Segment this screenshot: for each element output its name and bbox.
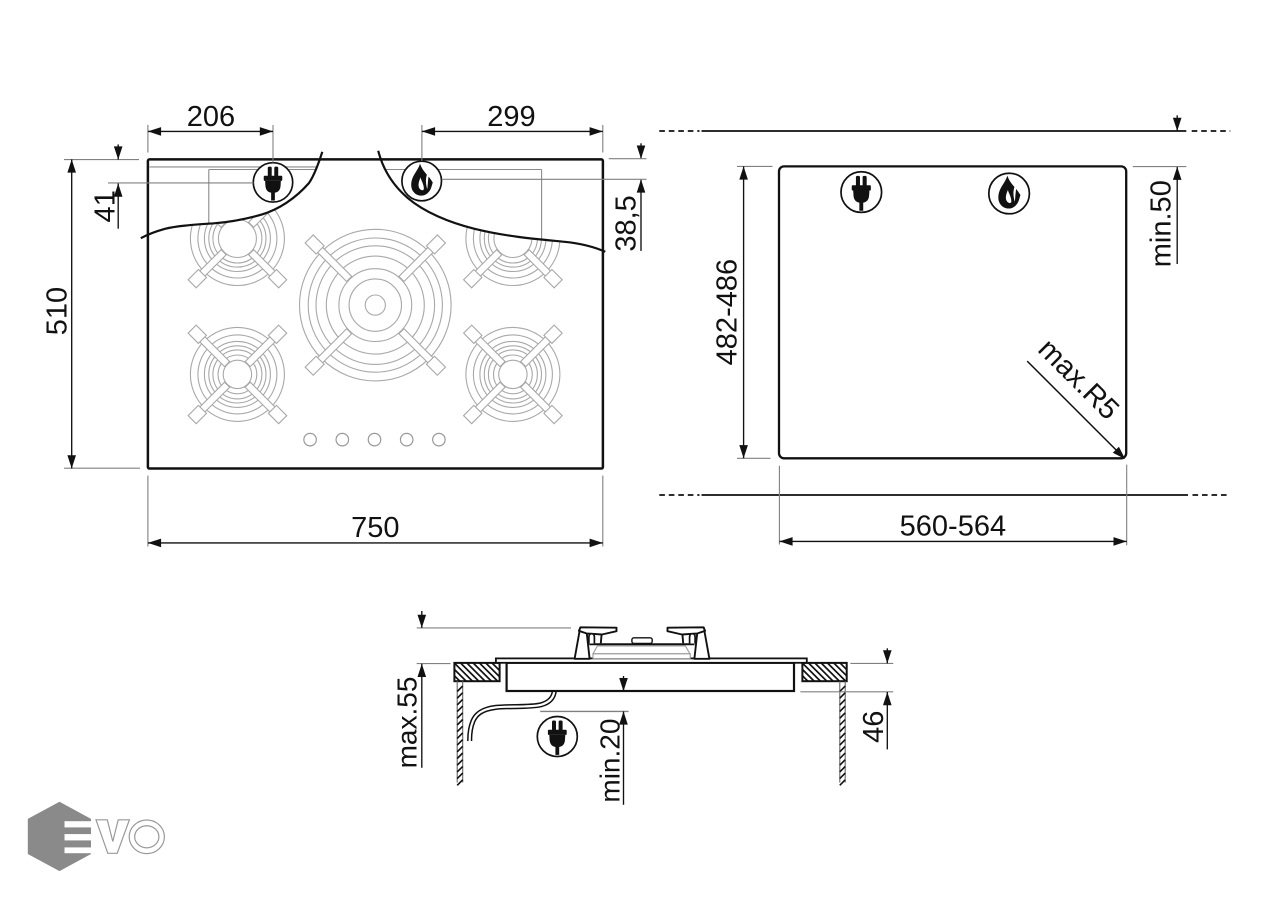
svg-text:482-486: 482-486 [711,259,743,365]
svg-text:46: 46 [858,711,890,743]
svg-text:299: 299 [487,101,535,133]
svg-text:max.55: max.55 [391,677,422,769]
svg-text:min.20: min.20 [594,719,625,803]
svg-text:560-564: 560-564 [900,510,1006,542]
svg-text:510: 510 [41,287,73,335]
svg-text:206: 206 [187,101,235,133]
svg-text:41: 41 [90,190,122,222]
svg-text:38,5: 38,5 [611,195,643,251]
svg-text:min.50: min.50 [1145,180,1177,267]
svg-text:750: 750 [351,512,399,544]
